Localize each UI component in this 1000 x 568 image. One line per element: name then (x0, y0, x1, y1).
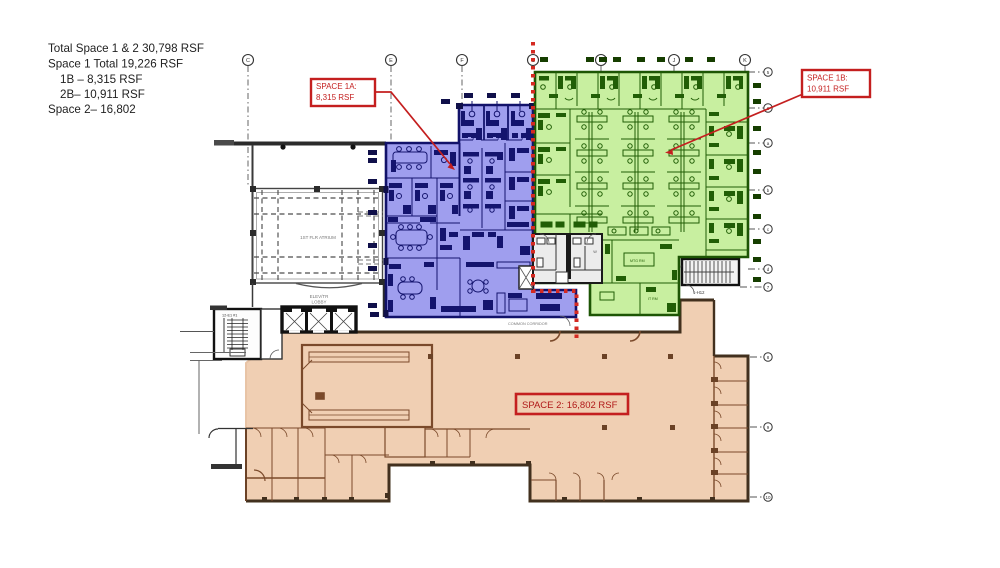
svg-text:1ST FLR ATRIUM: 1ST FLR ATRIUM (300, 235, 336, 240)
svg-text:SPACE 2: 16,802 RSF: SPACE 2: 16,802 RSF (522, 400, 618, 411)
svg-text:LOBBY: LOBBY (311, 300, 326, 305)
svg-text:Space 2– 16,802: Space 2– 16,802 (48, 103, 136, 116)
svg-text:IT RM: IT RM (648, 297, 658, 301)
svg-text:J: J (673, 58, 676, 64)
svg-text:COMMON CORRIDOR: COMMON CORRIDOR (508, 322, 548, 326)
svg-text:1-H12: 1-H12 (693, 290, 705, 295)
svg-text:12-E1 #1: 12-E1 #1 (222, 314, 237, 318)
svg-text:W: W (593, 250, 597, 254)
svg-text:K: K (743, 58, 747, 64)
svg-text:ELEV/TR: ELEV/TR (310, 294, 330, 299)
svg-text:SPACE 1B:: SPACE 1B: (807, 74, 848, 83)
svg-text:8,315 RSF: 8,315 RSF (316, 93, 354, 102)
svg-text:MTG RM: MTG RM (630, 259, 645, 263)
svg-text:Space 1 Total 19,226 RSF: Space 1 Total 19,226 RSF (48, 58, 183, 71)
svg-text:E: E (389, 58, 393, 64)
svg-text:C: C (246, 58, 250, 64)
svg-text:Total Space 1 & 2 30,798 RSF: Total Space 1 & 2 30,798 RSF (48, 42, 204, 55)
svg-text:2B– 10,911 RSF: 2B– 10,911 RSF (60, 88, 145, 101)
svg-text:SPACE 1A:: SPACE 1A: (316, 82, 357, 91)
svg-text:10: 10 (765, 495, 771, 500)
svg-text:1B – 8,315 RSF: 1B – 8,315 RSF (60, 73, 143, 86)
svg-text:10,911 RSF: 10,911 RSF (807, 85, 849, 94)
